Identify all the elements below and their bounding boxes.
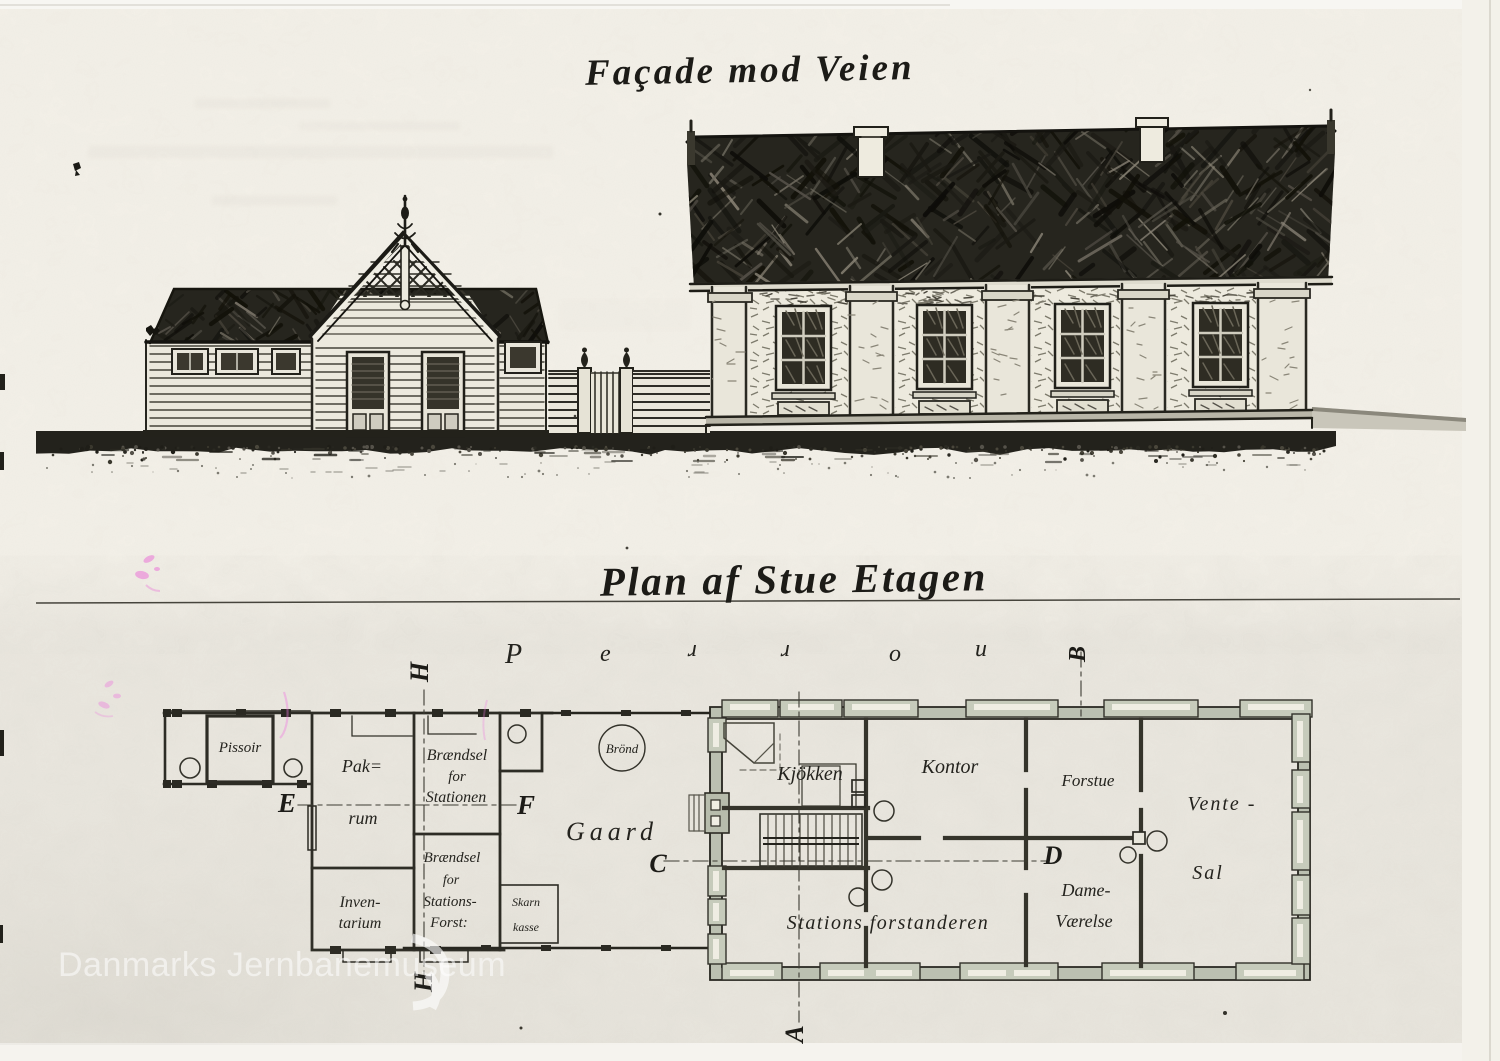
svg-text:A: A [780,1025,809,1044]
svg-text:Kjökken: Kjökken [776,763,843,785]
svg-text:H: H [405,661,434,683]
svg-text:Brændsel: Brændsel [427,747,488,764]
svg-text:Brönd: Brönd [606,741,639,756]
svg-text:n: n [975,639,987,665]
svg-text:e: e [600,641,611,667]
svg-text:Vente -: Vente - [1188,793,1257,815]
svg-text:B: B [1065,646,1091,663]
svg-text:Pak=: Pak= [341,756,382,776]
svg-text:Sal: Sal [1192,862,1224,884]
svg-text:r: r [687,639,697,665]
svg-text:Plan af Stue Etagen: Plan af Stue Etagen [598,553,988,604]
svg-text:Façade mod Veien: Façade mod Veien [584,47,915,94]
svg-text:Værelse: Værelse [1055,911,1112,931]
svg-text:Dame-: Dame- [1061,880,1111,900]
svg-text:D: D [1043,841,1063,870]
svg-text:o: o [889,641,901,667]
svg-text:P: P [504,639,522,670]
svg-text:Forstue: Forstue [1061,771,1115,790]
svg-text:Stations forstanderen: Stations forstanderen [787,912,989,934]
svg-text:Pissoir: Pissoir [218,740,262,756]
svg-text:Kontor: Kontor [921,756,979,778]
svg-text:r: r [780,639,790,665]
